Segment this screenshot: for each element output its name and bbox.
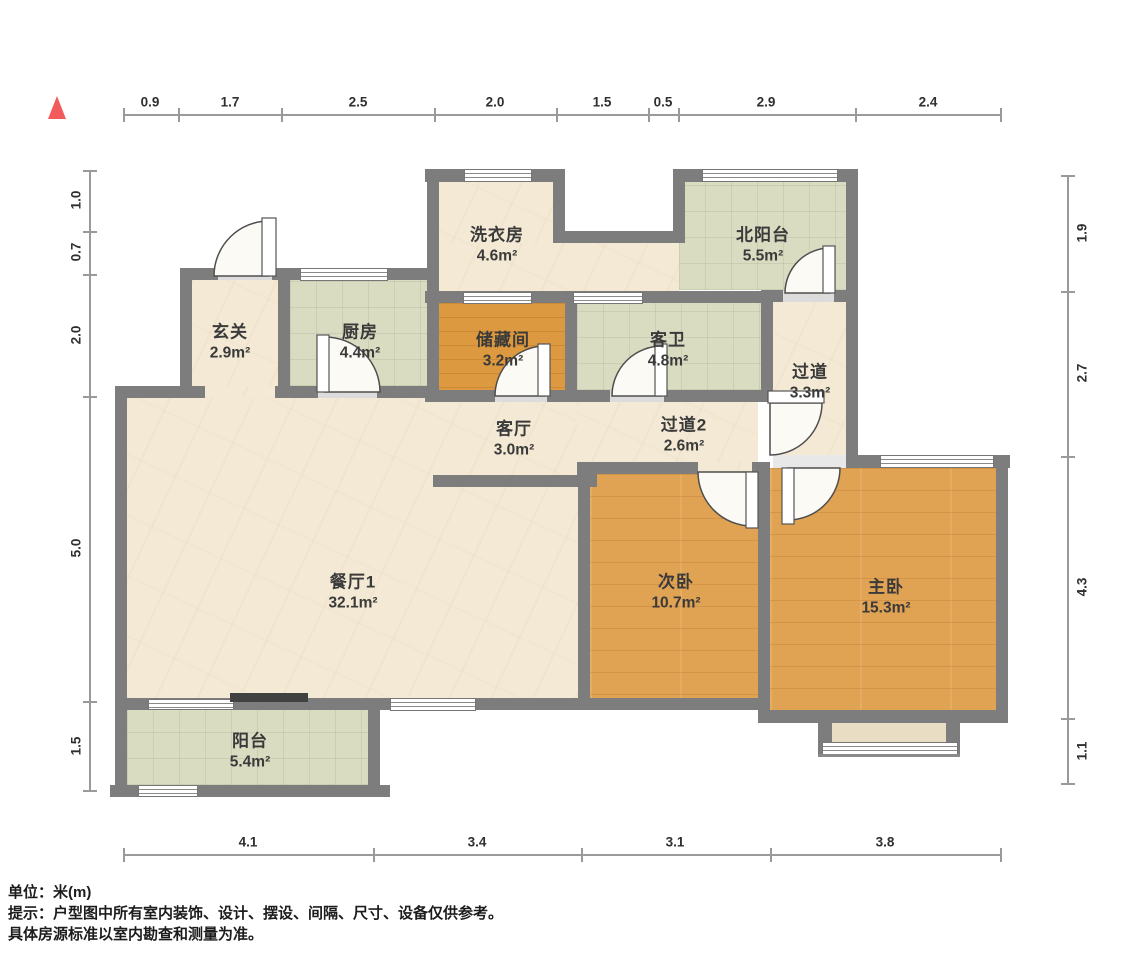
door-swings-layer [0, 0, 1125, 972]
tick [123, 108, 125, 122]
dim-label: 2.0 [69, 326, 84, 345]
dim-label: 1.9 [1075, 224, 1090, 243]
room-label-entry: 玄关2.9m² [210, 318, 251, 363]
dim-label: 1.0 [69, 191, 84, 210]
tick [770, 848, 772, 862]
dim-label: 1.1 [1075, 742, 1090, 761]
dim-label: 4.3 [1075, 578, 1090, 597]
tick [434, 108, 436, 122]
master-door-leaf [782, 468, 794, 524]
tick [556, 108, 558, 122]
room-label-storage: 储藏间3.2m² [476, 326, 530, 371]
dim-label: 2.5 [349, 95, 368, 110]
tick [1061, 783, 1075, 785]
tick [83, 274, 97, 276]
room-label-north-balcony: 北阳台5.5m² [736, 221, 790, 266]
room-label-master-bedroom: 主卧15.3m² [861, 573, 910, 618]
dim-label: 1.5 [69, 737, 84, 756]
storage-door-leaf [538, 344, 550, 396]
north-balcony-door-leaf [823, 246, 835, 293]
entry-door-leaf [262, 218, 276, 276]
dim-label: 3.8 [876, 835, 895, 850]
tick [581, 848, 583, 862]
room-label-second-bedroom: 次卧10.7m² [651, 568, 700, 613]
room-label-dining: 餐厅132.1m² [328, 568, 377, 613]
dim-label: 5.0 [69, 539, 84, 558]
tick [678, 108, 680, 122]
tick [123, 848, 125, 862]
dim-label: 2.4 [919, 95, 938, 110]
dim-label: 2.9 [757, 95, 776, 110]
room-label-guest-bath: 客卫4.8m² [648, 326, 689, 371]
dim-label: 0.7 [69, 243, 84, 262]
tick [1061, 456, 1075, 458]
tick [1061, 291, 1075, 293]
tick [855, 108, 857, 122]
tick [83, 170, 97, 172]
tick [83, 231, 97, 233]
tick [83, 701, 97, 703]
tip-line-1: 提示：户型图中所有室内装饰、设计、摆设、间隔、尺寸、设备仅供参考。 [8, 903, 503, 924]
dim-label: 1.7 [221, 95, 240, 110]
room-label-corridor: 过道3.3m² [790, 358, 831, 403]
room-label-living: 客厅3.0m² [494, 415, 535, 460]
bedroom2-door-leaf [746, 472, 758, 528]
tick [1061, 175, 1075, 177]
dim-label: 0.5 [654, 95, 673, 110]
room-label-laundry: 洗衣房4.6m² [470, 221, 524, 266]
dim-label: 4.1 [239, 835, 258, 850]
tick [281, 108, 283, 122]
master-door-arc [788, 468, 840, 520]
dim-label: 0.9 [141, 95, 160, 110]
room-label-balcony: 阳台5.4m² [230, 727, 271, 772]
tick [1000, 848, 1002, 862]
dim-label: 2.0 [486, 95, 505, 110]
kitchen-door-leaf [317, 335, 329, 392]
dim-label: 1.5 [593, 95, 612, 110]
bedroom2-door-arc [698, 472, 752, 526]
tick [373, 848, 375, 862]
room-label-corridor2: 过道22.6m² [661, 411, 707, 456]
dim-label: 3.4 [468, 835, 487, 850]
dim-label: 3.1 [666, 835, 685, 850]
tick [83, 396, 97, 398]
room-label-kitchen: 厨房4.4m² [340, 318, 381, 363]
tick [83, 790, 97, 792]
floorplan-canvas: 洗衣房4.6m² 北阳台5.5m² 玄关2.9m² 厨房4.4m² 储藏间3.2… [0, 0, 1125, 972]
unit-note: 单位：米(m) [8, 882, 503, 903]
tick [178, 108, 180, 122]
tick [648, 108, 650, 122]
footer-notes: 单位：米(m) 提示：户型图中所有室内装饰、设计、摆设、间隔、尺寸、设备仅供参考… [8, 882, 503, 945]
corridor-door-arc [770, 403, 822, 455]
tick [1061, 718, 1075, 720]
tip-line-2: 具体房源标准以室内勘查和测量为准。 [8, 924, 503, 945]
dim-label: 2.7 [1075, 364, 1090, 383]
entry-door-arc [214, 221, 269, 276]
tick [1000, 108, 1002, 122]
